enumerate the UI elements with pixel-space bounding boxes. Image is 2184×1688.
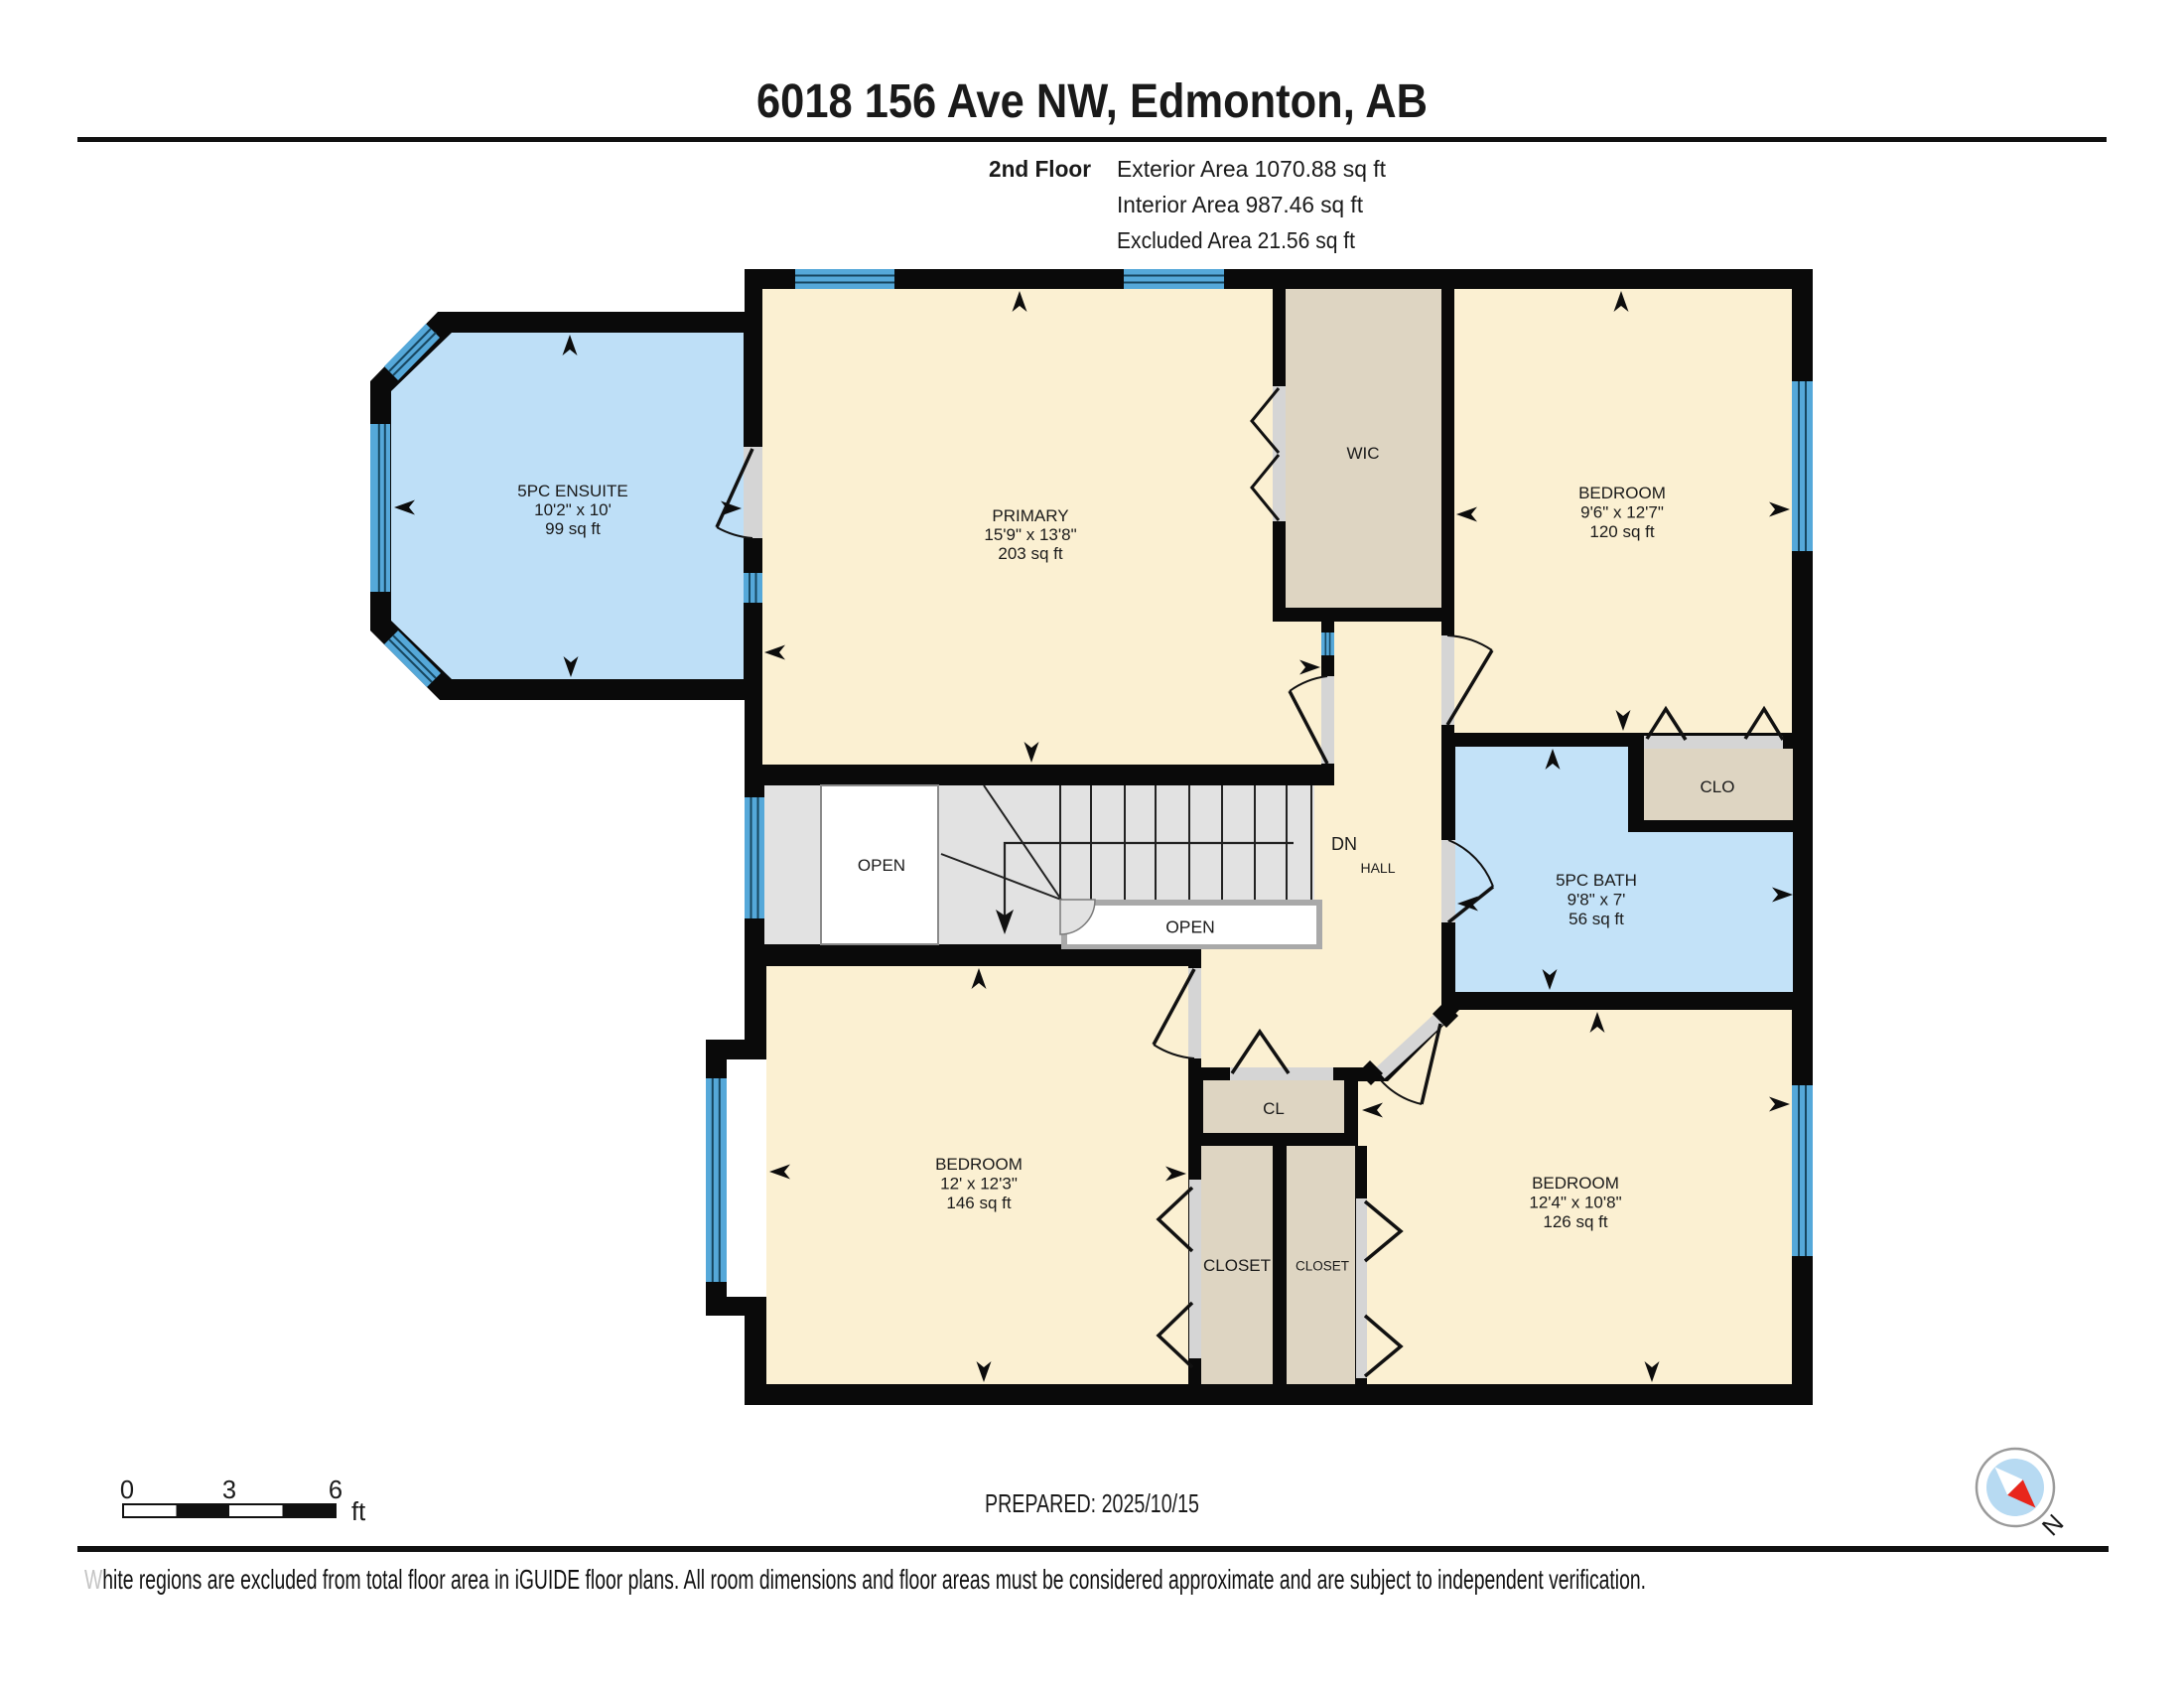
svg-text:PRIMARY: PRIMARY [992,506,1068,525]
svg-text:9'6" x 12'7": 9'6" x 12'7" [1580,503,1664,522]
svg-text:15'9" x 13'8": 15'9" x 13'8" [984,525,1076,544]
svg-text:HALL: HALL [1360,860,1395,876]
svg-text:2nd Floor: 2nd Floor [989,156,1091,182]
svg-text:BEDROOM: BEDROOM [1578,484,1666,502]
svg-text:99 sq ft: 99 sq ft [545,519,601,538]
svg-text:DN: DN [1331,834,1357,854]
svg-text:10'2" x 10': 10'2" x 10' [534,500,612,519]
svg-text:ft: ft [351,1498,365,1526]
svg-text:9'8" x 7': 9'8" x 7' [1568,891,1626,910]
svg-text:0: 0 [120,1477,134,1504]
svg-text:6018 156 Ave NW, Edmonton, AB: 6018 156 Ave NW, Edmonton, AB [756,75,1428,128]
svg-text:146 sq ft: 146 sq ft [946,1194,1011,1212]
svg-text:56 sq ft: 56 sq ft [1569,910,1624,928]
svg-text:PREPARED: 2025/10/15: PREPARED: 2025/10/15 [985,1490,1199,1518]
svg-text:203 sq ft: 203 sq ft [998,544,1062,563]
svg-text:120 sq ft: 120 sq ft [1589,522,1654,541]
svg-text:OPEN: OPEN [1165,917,1215,937]
svg-text:OPEN: OPEN [858,856,905,875]
svg-text:WIC: WIC [1346,444,1379,463]
svg-text:Excluded Area 21.56 sq ft: Excluded Area 21.56 sq ft [1117,227,1355,253]
svg-text:5PC ENSUITE: 5PC ENSUITE [517,482,627,500]
svg-text:126 sq ft: 126 sq ft [1543,1212,1607,1231]
svg-text:Interior Area 987.46 sq ft: Interior Area 987.46 sq ft [1117,192,1363,217]
svg-text:White regions are excluded fro: White regions are excluded from total fl… [84,1564,1646,1595]
svg-text:CLO: CLO [1701,777,1735,796]
svg-text:BEDROOM: BEDROOM [935,1155,1023,1174]
svg-text:12' x 12'3": 12' x 12'3" [940,1175,1018,1194]
svg-text:BEDROOM: BEDROOM [1532,1174,1619,1193]
svg-text:CLOSET: CLOSET [1203,1256,1271,1275]
svg-text:12'4" x 10'8": 12'4" x 10'8" [1529,1194,1621,1212]
svg-text:CL: CL [1263,1099,1285,1118]
svg-text:3: 3 [222,1477,236,1504]
svg-text:5PC BATH: 5PC BATH [1556,871,1637,890]
svg-text:6: 6 [329,1477,342,1504]
svg-text:Exterior Area 1070.88 sq ft: Exterior Area 1070.88 sq ft [1117,156,1386,182]
svg-text:CLOSET: CLOSET [1296,1259,1349,1274]
